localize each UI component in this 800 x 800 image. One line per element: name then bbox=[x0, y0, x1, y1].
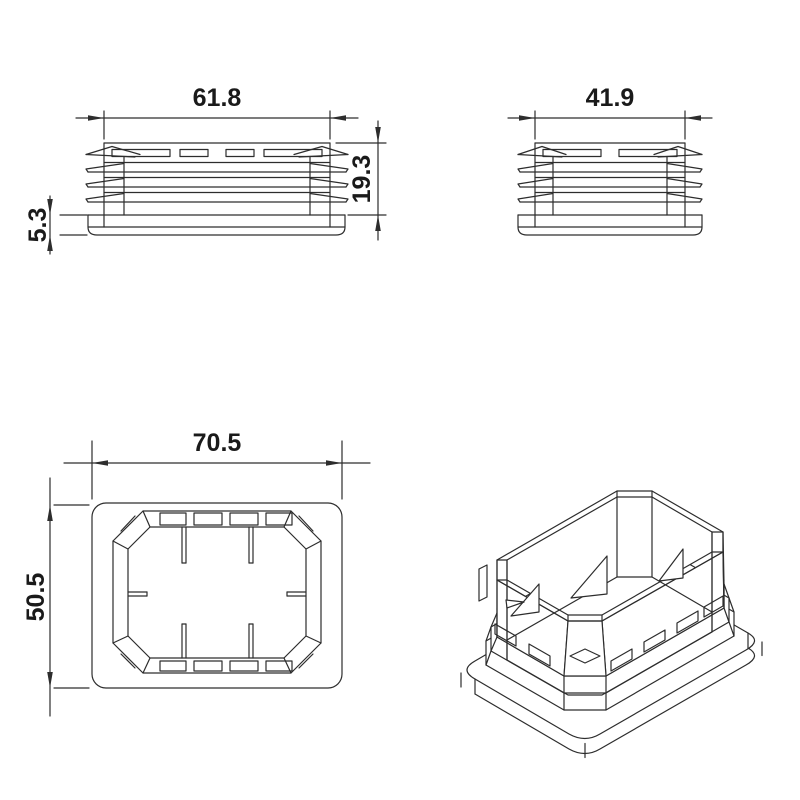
top-view-body bbox=[92, 503, 342, 688]
arrowhead bbox=[47, 672, 53, 688]
arrowhead bbox=[326, 460, 342, 466]
arrowhead bbox=[375, 127, 381, 143]
arrowhead bbox=[685, 115, 701, 121]
side-view-body bbox=[518, 143, 702, 235]
dim-label-front-height: 19.3 bbox=[348, 155, 376, 204]
arrowhead bbox=[47, 505, 53, 521]
dimension-61-8: 61.8 bbox=[76, 84, 358, 139]
dimension-41-9: 41.9 bbox=[508, 84, 712, 139]
dimension-70-5: 70.5 bbox=[64, 429, 370, 499]
dimension-50-5: 50.5 bbox=[22, 478, 89, 716]
isometric-view bbox=[461, 491, 762, 758]
dimension-5-3: 5.3 bbox=[24, 196, 87, 254]
arrowhead bbox=[375, 215, 381, 231]
top-view: 70.5 50.5 bbox=[22, 429, 370, 716]
arrowhead bbox=[88, 115, 104, 121]
dim-label-side-width: 41.9 bbox=[586, 84, 635, 112]
front-view: 61.8 19.3 5.3 bbox=[24, 84, 386, 254]
arrowhead bbox=[330, 115, 346, 121]
dim-label-top-height: 50.5 bbox=[22, 573, 50, 622]
side-view: 41.9 bbox=[508, 84, 712, 235]
front-view-body bbox=[86, 143, 348, 235]
dimension-19-3: 19.3 bbox=[336, 121, 386, 240]
dim-label-front-width: 61.8 bbox=[193, 84, 242, 112]
dim-label-top-width: 70.5 bbox=[193, 429, 242, 457]
technical-drawing-canvas: 61.8 19.3 5.3 bbox=[0, 0, 800, 800]
dim-label-front-flange: 5.3 bbox=[24, 208, 52, 243]
arrowhead bbox=[519, 115, 535, 121]
arrowhead bbox=[92, 460, 108, 466]
